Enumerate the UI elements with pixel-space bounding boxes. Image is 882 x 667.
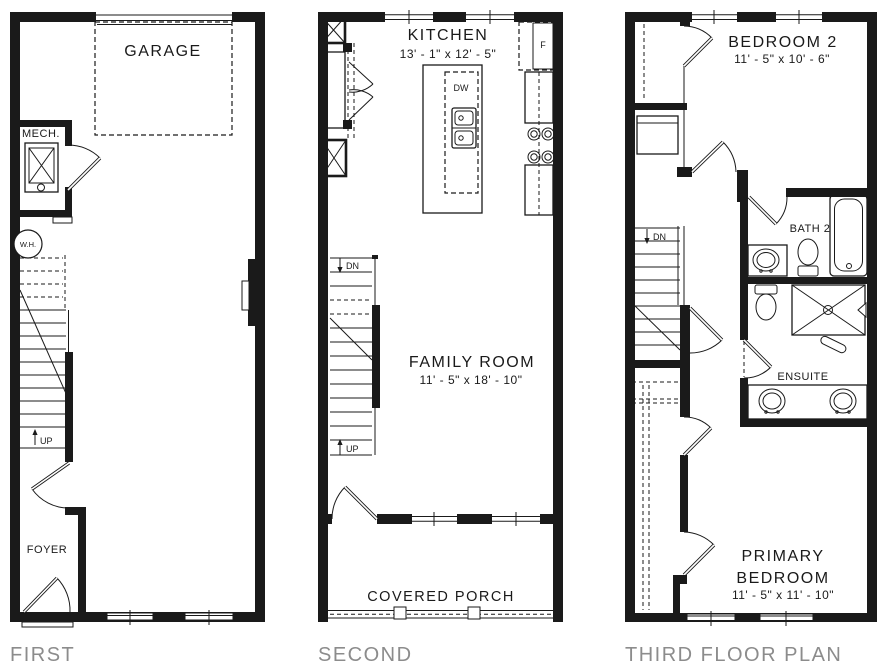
wall <box>867 12 877 622</box>
stairs-break-line <box>632 303 680 350</box>
porch-post <box>394 607 406 619</box>
door-leaf <box>744 340 771 367</box>
wall <box>540 514 563 524</box>
wall <box>318 12 328 622</box>
wall <box>680 12 690 26</box>
foyer-label: FOYER <box>27 544 67 556</box>
bedroom2-dims: 11' - 5" x 10' - 6" <box>734 52 830 66</box>
door-swing <box>57 578 70 612</box>
wall <box>65 120 72 146</box>
stairs-up-label: UP <box>40 436 53 446</box>
ensuite-sink-basin <box>763 393 781 409</box>
furnace-valve <box>38 184 45 191</box>
kitchen-label: KITCHEN <box>408 27 489 44</box>
wall <box>255 12 265 622</box>
bath2-label: BATH 2 <box>790 223 831 235</box>
bath2-toilet-tank <box>798 266 818 276</box>
stair-wall <box>372 255 378 259</box>
door-leaf <box>690 308 722 340</box>
water-heater-label: W.H. <box>20 240 36 249</box>
primary-bedroom-dims: 11' - 5" x 11' - 10" <box>732 588 834 602</box>
covered-porch-label: COVERED PORCH <box>367 589 515 605</box>
wall <box>457 514 492 524</box>
sink-drain <box>459 136 463 140</box>
door-swing <box>332 487 345 519</box>
wall-niche <box>242 281 249 310</box>
bath2-toilet-bowl <box>798 239 818 265</box>
door-swing <box>744 367 771 378</box>
door-leaf <box>68 158 100 190</box>
furnace-coil <box>29 148 54 183</box>
sink-basin <box>455 111 473 125</box>
wall <box>377 514 412 524</box>
stairs-down-label: DN <box>653 232 666 242</box>
stairs-hidden <box>330 300 372 314</box>
ensuite-sink-basin <box>834 393 852 409</box>
towel-bar <box>819 335 847 354</box>
third-floor-plan: BEDROOM 2 11' - 5" x 10' - 6" BATH 2 DN … <box>625 10 877 666</box>
stairs-break-line <box>20 290 68 398</box>
porch-post <box>468 607 480 619</box>
door-swing <box>776 197 787 224</box>
sink-basin <box>455 131 473 145</box>
faucet-dot <box>770 270 772 272</box>
door-leaf <box>684 545 714 575</box>
wall <box>740 277 877 284</box>
linen-shelf-line <box>637 110 684 167</box>
stairs-treads <box>20 310 69 448</box>
second-floor-label: SECOND <box>318 644 413 666</box>
up-arrow-head <box>32 429 37 435</box>
shower-door-mark <box>858 303 866 317</box>
wall <box>740 200 748 283</box>
door-leaf <box>684 38 712 66</box>
wall <box>318 514 332 524</box>
wall <box>10 210 72 217</box>
door-sill <box>22 622 73 627</box>
faucet-dot <box>760 270 762 272</box>
stairs-treads <box>632 226 684 345</box>
wall <box>673 575 687 584</box>
first-floor-plan: GARAGE MECH. W.H. UP FOYER FIRST <box>10 12 265 666</box>
door-swing <box>690 340 722 353</box>
door-leaf <box>692 142 723 172</box>
closet-door-leaf <box>349 97 373 120</box>
wall <box>737 12 776 22</box>
ensuite-toilet-bowl <box>756 294 776 320</box>
wall <box>10 12 96 22</box>
bath2-sink-basin <box>757 253 775 268</box>
wall <box>630 360 690 368</box>
linen-shelf <box>637 116 678 154</box>
stairs-down-label: DN <box>346 261 359 271</box>
wall <box>737 170 748 202</box>
sink-drain <box>459 116 463 120</box>
wall <box>680 455 688 532</box>
door-swing <box>723 142 736 172</box>
wall <box>553 12 563 622</box>
garage-outline <box>95 22 232 135</box>
cooktop-burners <box>528 128 554 163</box>
garage-label: GARAGE <box>124 43 201 60</box>
wall <box>433 12 466 22</box>
door-leaf <box>684 428 711 455</box>
second-floor-plan: KITCHEN 13' - 1" x 12' - 5" DW F DN UP F… <box>318 10 563 666</box>
stairs-up-label: UP <box>346 444 359 454</box>
wall <box>625 103 687 110</box>
stairs-treads <box>330 258 372 455</box>
ensuite-label: ENSUITE <box>777 371 828 383</box>
wall <box>673 584 680 613</box>
dishwasher-label: DW <box>454 83 469 93</box>
door-leaf <box>749 197 776 224</box>
family-room-label: FAMILY ROOM <box>409 354 535 371</box>
floor-plan-sheet: GARAGE MECH. W.H. UP FOYER FIRST <box>0 0 882 667</box>
wall <box>740 419 877 427</box>
door-swing <box>68 145 100 158</box>
door-swing <box>32 489 69 508</box>
door-swing <box>684 26 712 38</box>
bedroom2-label: BEDROOM 2 <box>728 34 838 51</box>
third-floor-label: THIRD FLOOR PLAN <box>625 644 842 666</box>
wall <box>10 12 20 622</box>
wall <box>625 613 877 622</box>
wall <box>78 507 86 614</box>
primary-bedroom-label-line1: PRIMARY <box>741 548 824 565</box>
closet-door-leaf <box>349 62 373 84</box>
stair-wall <box>65 352 73 462</box>
first-floor-label: FIRST <box>10 644 75 666</box>
fridge-label: F <box>540 40 546 50</box>
wall <box>740 284 748 340</box>
door-leaf <box>24 578 57 612</box>
door-swing <box>684 417 711 428</box>
primary-bedroom-label-line2: BEDROOM <box>736 570 829 587</box>
kitchen-dims: 13' - 1" x 12' - 5" <box>400 47 497 61</box>
garage-door <box>94 15 234 25</box>
stair-wall <box>372 305 380 408</box>
door-leaf <box>32 463 69 489</box>
mech-label: MECH. <box>22 128 60 140</box>
wall-return <box>53 217 72 223</box>
wall <box>677 167 692 177</box>
tub-drain <box>847 264 852 269</box>
floor-plan-drawing: GARAGE MECH. W.H. UP FOYER FIRST <box>0 0 882 667</box>
closet-door-swing <box>349 90 373 97</box>
door-swing <box>684 532 714 545</box>
wall <box>10 120 72 127</box>
stairs-hidden <box>20 255 65 310</box>
bath2-tub-inner <box>835 199 863 271</box>
shower-x <box>792 285 865 335</box>
ensuite-toilet-tank <box>755 285 777 294</box>
furnace <box>25 143 58 192</box>
family-room-dims: 11' - 5" x 18' - 10" <box>420 373 523 387</box>
door-leaf <box>345 487 377 519</box>
